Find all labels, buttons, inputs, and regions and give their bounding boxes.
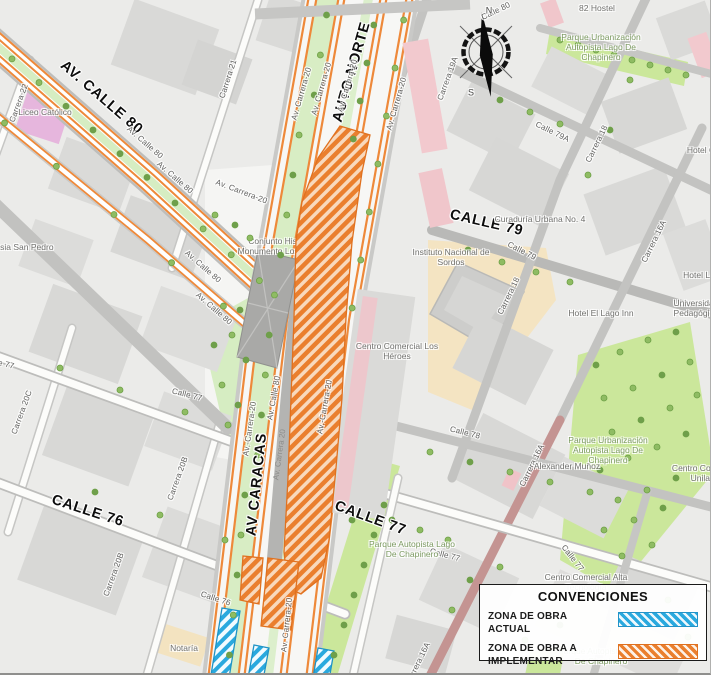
tree-icon [467, 577, 473, 583]
tree-icon [284, 212, 290, 218]
tree-icon [645, 337, 651, 343]
tree-icon [644, 487, 650, 493]
tree-icon [341, 622, 347, 628]
tree-icon [619, 553, 625, 559]
tree-icon [597, 467, 603, 473]
tree-icon [238, 532, 244, 538]
tree-icon [557, 121, 563, 127]
tree-icon [296, 132, 302, 138]
tree-icon [389, 517, 395, 523]
tree-icon [349, 305, 355, 311]
tree-icon [157, 512, 163, 518]
tree-icon [357, 98, 363, 104]
tree-icon [673, 475, 679, 481]
tree-icon [317, 52, 323, 58]
tree-icon [683, 431, 689, 437]
tree-icon [547, 479, 553, 485]
tree-icon [654, 444, 660, 450]
tree-icon [587, 489, 593, 495]
tree-icon [611, 52, 617, 58]
legend-title: CONVENCIONES [488, 589, 698, 604]
tree-icon [219, 382, 225, 388]
legend-swatch-obra-a-implementar [618, 644, 698, 659]
tree-icon [649, 542, 655, 548]
tree-icon [630, 385, 636, 391]
tree-icon [2, 120, 8, 126]
tree-icon [256, 278, 262, 284]
tree-icon [331, 652, 337, 658]
tree-icon [557, 37, 563, 43]
tree-icon [601, 395, 607, 401]
tree-icon [627, 77, 633, 83]
tree-icon [659, 372, 665, 378]
tree-icon [647, 62, 653, 68]
legend-label-obra-a-implementar: ZONA DE OBRA A IMPLEMENTAR [488, 643, 606, 668]
tree-icon [427, 449, 433, 455]
tree-icon [247, 235, 253, 241]
tree-icon [144, 174, 150, 180]
tree-icon [687, 359, 693, 365]
tree-icon [36, 80, 42, 86]
tree-icon [364, 60, 370, 66]
zona-obra-a-implementar [240, 126, 370, 630]
tree-icon [182, 409, 188, 415]
tree-icon [266, 332, 272, 338]
tree-icon [527, 109, 533, 115]
tree-icon [660, 505, 666, 511]
tree-icon [617, 349, 623, 355]
tree-icon [53, 163, 59, 169]
tree-icon [232, 222, 238, 228]
tree-icon [673, 329, 679, 335]
tree-icon [235, 402, 241, 408]
tree-icon [358, 257, 364, 263]
tree-icon [9, 56, 15, 62]
tree-icon [371, 532, 377, 538]
tree-icon [234, 572, 240, 578]
tree-icon [631, 517, 637, 523]
tree-icon [467, 459, 473, 465]
tree-icon [211, 342, 217, 348]
tree-icon [575, 42, 581, 48]
tree-icon [609, 429, 615, 435]
tree-icon [567, 279, 573, 285]
tree-icon [607, 127, 613, 133]
tree-icon [638, 417, 644, 423]
compass-icon [460, 12, 512, 98]
tree-icon [243, 357, 249, 363]
tree-icon [615, 497, 621, 503]
tree-icon [90, 127, 96, 133]
tree-icon [593, 362, 599, 368]
legend-row-obra-actual: ZONA DE OBRA ACTUAL [488, 611, 698, 636]
tree-icon [225, 422, 231, 428]
tree-icon [694, 392, 700, 398]
tree-icon [255, 452, 261, 458]
tree-icon [449, 607, 455, 613]
tree-icon [683, 72, 689, 78]
tree-icon [349, 517, 355, 523]
tree-icon [361, 562, 367, 568]
legend: CONVENCIONES ZONA DE OBRA ACTUAL ZONA DE… [479, 584, 707, 661]
tree-icon [366, 209, 372, 215]
tree-icon [383, 113, 389, 119]
tree-icon [593, 47, 599, 53]
tree-icon [629, 57, 635, 63]
tree-icon [111, 212, 117, 218]
tree-icon [212, 212, 218, 218]
tree-icon [229, 332, 235, 338]
legend-swatch-obra-actual [618, 612, 698, 627]
tree-icon [311, 92, 317, 98]
tree-icon [351, 592, 357, 598]
tree-icon [533, 269, 539, 275]
tree-icon [271, 292, 277, 298]
tree-icon [499, 259, 505, 265]
tree-icon [242, 492, 248, 498]
tree-icon [381, 502, 387, 508]
tree-icon [417, 527, 423, 533]
tree-icon [57, 365, 63, 371]
tree-icon [220, 303, 226, 309]
tree-icon [375, 161, 381, 167]
tree-icon [63, 103, 69, 109]
tree-icon [117, 151, 123, 157]
tree-icon [497, 97, 503, 103]
tree-icon [350, 136, 356, 142]
tree-icon [222, 537, 228, 543]
tree-icon [278, 252, 284, 258]
tree-icon [200, 226, 206, 232]
tree-icon [601, 527, 607, 533]
trees [0, 12, 700, 658]
map-zones-art [0, 0, 711, 675]
tree-icon [290, 172, 296, 178]
tree-icon [226, 652, 232, 658]
tree-icon [117, 387, 123, 393]
tree-icon [172, 200, 178, 206]
tree-icon [371, 22, 377, 28]
tree-icon [228, 252, 234, 258]
tree-icon [667, 405, 673, 411]
tree-icon [169, 260, 175, 266]
map-canvas: Conjunto Histórico Monumento Los Héroes [0, 0, 711, 675]
tree-icon [324, 12, 330, 18]
tree-icon [497, 564, 503, 570]
tree-icon [625, 455, 631, 461]
tree-icon [665, 67, 671, 73]
tree-icon [237, 307, 243, 313]
tree-icon [507, 469, 513, 475]
tree-icon [258, 412, 264, 418]
tree-icon [585, 172, 591, 178]
tree-icon [92, 489, 98, 495]
tree-icon [262, 372, 268, 378]
tree-icon [230, 612, 236, 618]
tree-icon [465, 247, 471, 253]
legend-row-obra-a-implementar: ZONA DE OBRA A IMPLEMENTAR [488, 643, 698, 668]
tree-icon [392, 65, 398, 71]
legend-label-obra-actual: ZONA DE OBRA ACTUAL [488, 611, 606, 636]
tree-icon [445, 537, 451, 543]
tree-icon [401, 17, 407, 23]
